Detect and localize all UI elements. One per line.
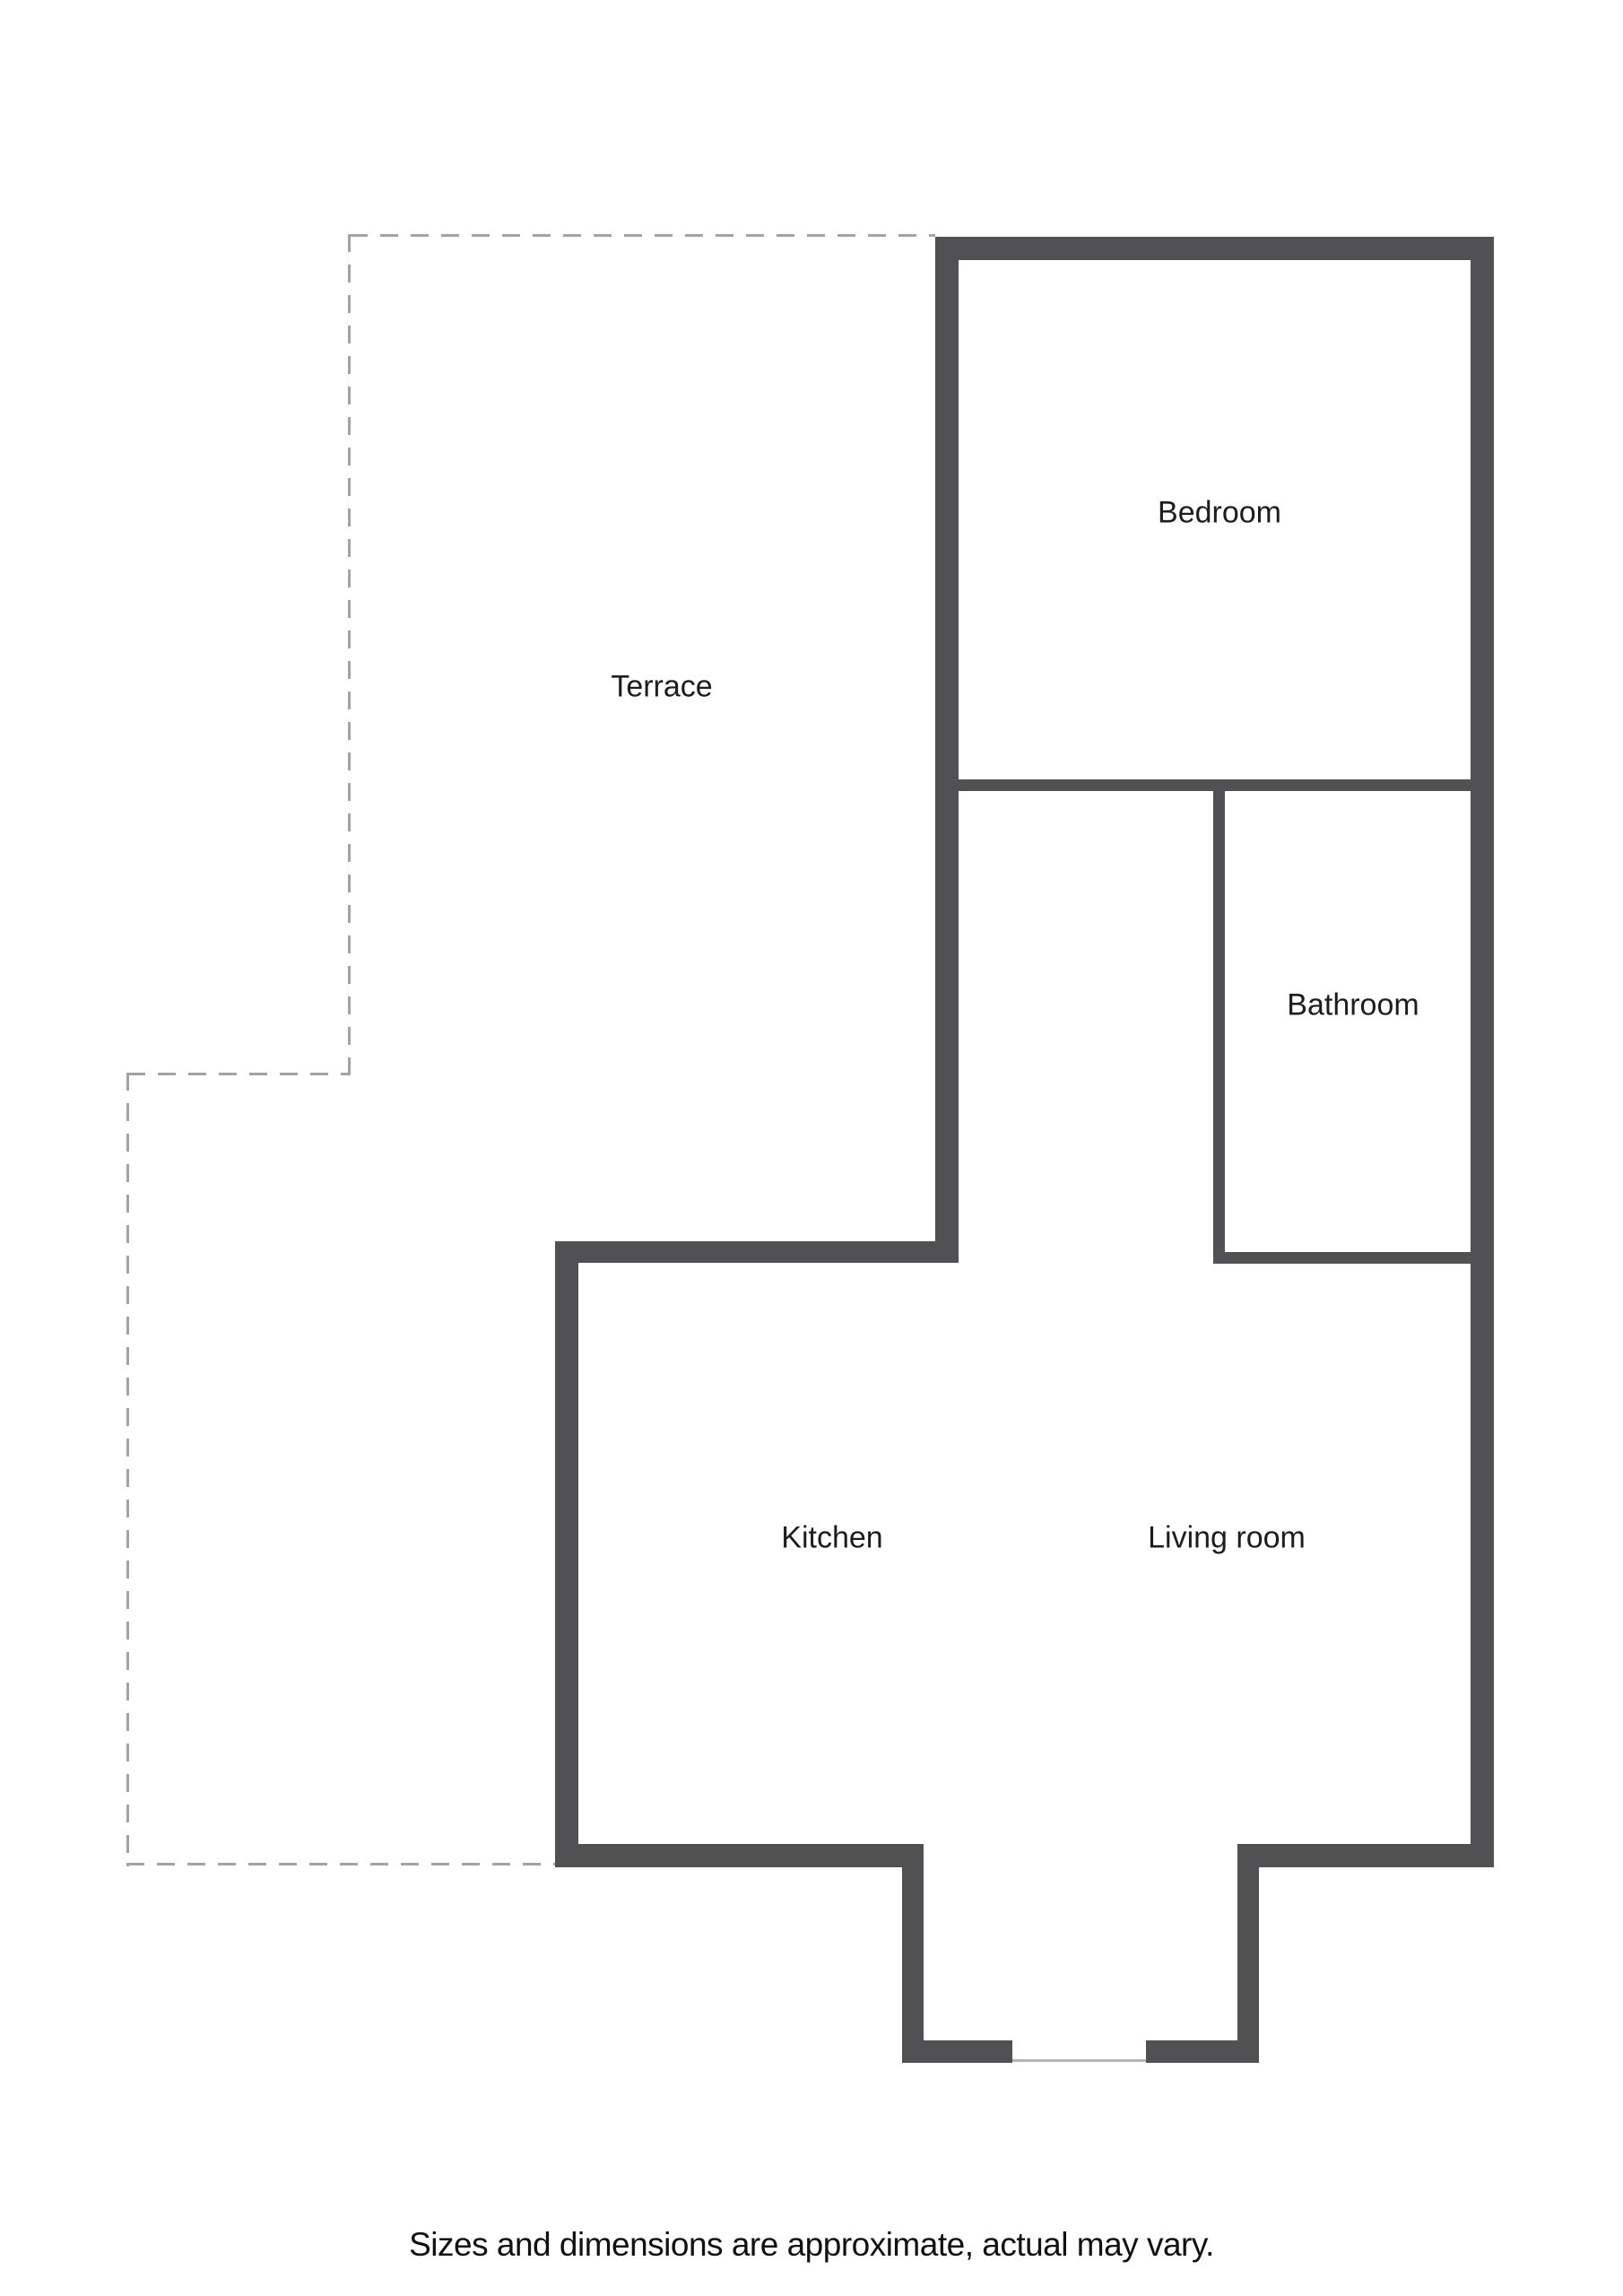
entry-door-threshold-line bbox=[1012, 2059, 1146, 2062]
disclaimer-text: Sizes and dimensions are approximate, ac… bbox=[0, 2226, 1623, 2264]
south-wall-east-segment bbox=[1237, 1844, 1494, 1867]
terrace-outline-west-lower-dashed-line bbox=[126, 1073, 129, 1866]
kitchen-west-wall bbox=[555, 1241, 578, 1867]
terrace-outline-west-upper-dashed-line bbox=[348, 234, 351, 1075]
vestibule-south-wall-left bbox=[902, 2040, 1012, 2063]
bathroom-west-wall bbox=[1213, 791, 1225, 1264]
bedroom-north-wall bbox=[935, 237, 1494, 260]
terrace-outline-step-dashed-line bbox=[127, 1073, 351, 1075]
south-wall-west-segment bbox=[555, 1844, 924, 1867]
bedroom-label: Bedroom bbox=[1158, 496, 1281, 529]
kitchen-north-wall bbox=[555, 1241, 959, 1263]
floor-plan: Terrace Bedroom Bathroom Kitchen Living … bbox=[0, 0, 1623, 2296]
bathroom-label: Bathroom bbox=[1287, 988, 1419, 1022]
terrace-outline-south-dashed-line bbox=[126, 1863, 555, 1865]
west-wall-upper bbox=[935, 237, 959, 1263]
terrace-label: Terrace bbox=[611, 670, 712, 703]
bedroom-south-wall bbox=[959, 779, 1471, 791]
bathroom-south-wall bbox=[1225, 1252, 1471, 1264]
vestibule-west-wall bbox=[902, 1844, 924, 2063]
living-room-label: Living room bbox=[1148, 1521, 1306, 1554]
east-wall bbox=[1471, 237, 1494, 1867]
vestibule-east-wall bbox=[1237, 1844, 1259, 2063]
terrace-outline-north-dashed-line bbox=[350, 234, 935, 237]
kitchen-label: Kitchen bbox=[781, 1521, 882, 1554]
